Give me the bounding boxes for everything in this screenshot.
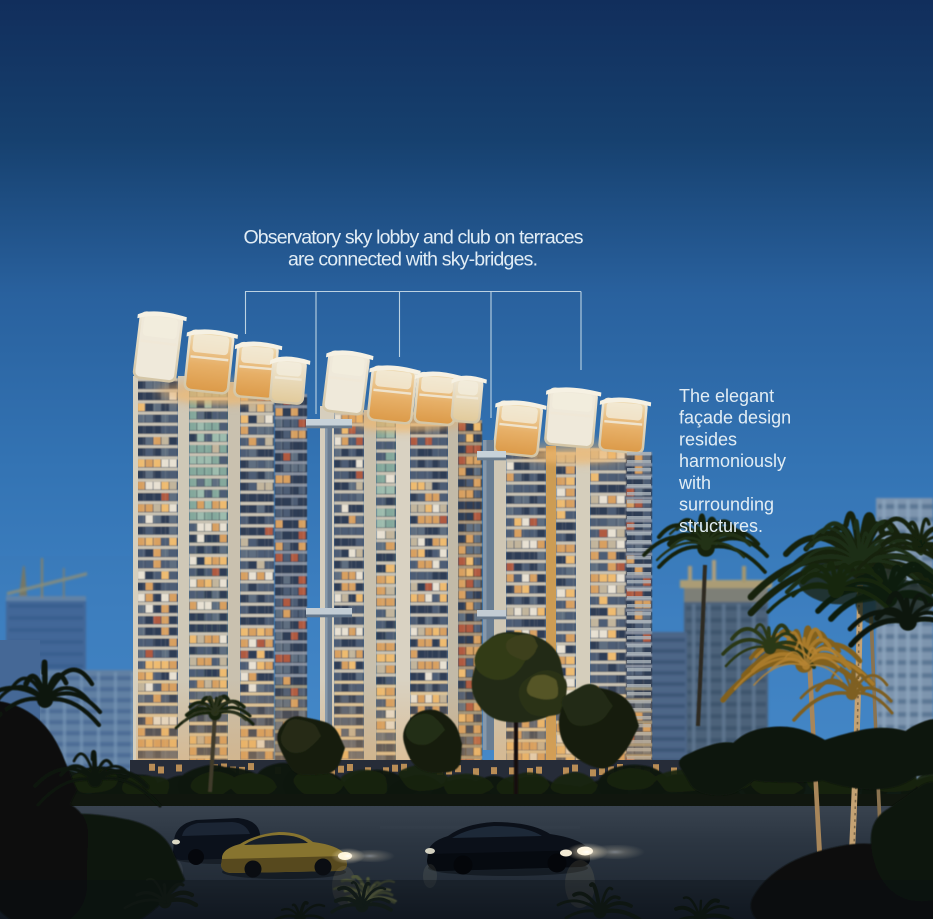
svg-text:Observatory sky lobby and club: Observatory sky lobby and club on terrac… <box>244 227 584 249</box>
svg-text:are connected with sky-bridges: are connected with sky-bridges. <box>288 249 538 271</box>
svg-text:façade design: façade design <box>679 408 791 428</box>
svg-text:resides: resides <box>679 429 737 449</box>
svg-text:surrounding: surrounding <box>679 495 774 515</box>
svg-text:with: with <box>678 473 711 493</box>
svg-text:structures.: structures. <box>679 516 763 536</box>
svg-text:harmoniously: harmoniously <box>679 451 786 471</box>
svg-text:The elegant: The elegant <box>679 386 774 406</box>
